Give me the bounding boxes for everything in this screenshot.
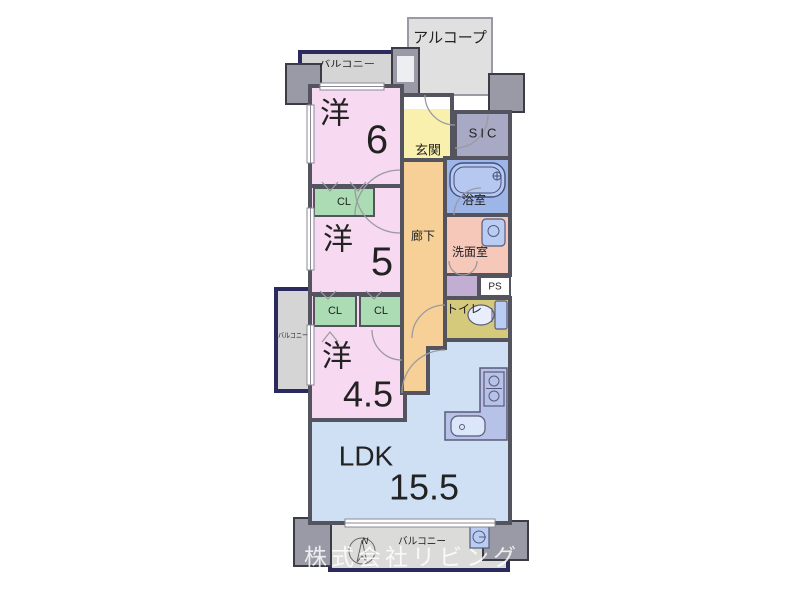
hallway-label: 廊下 [411, 228, 435, 243]
bedroom-45-label: 洋 [322, 341, 352, 374]
storage-box [445, 275, 478, 298]
washroom-label: 洗面室 [452, 244, 488, 259]
closet-label: CL [328, 305, 342, 317]
ldk-label: LDK [339, 441, 394, 472]
column-top-right [489, 74, 524, 112]
washroom-sink-icon [482, 219, 505, 246]
watermark-text: 株式会社リビング [304, 544, 520, 570]
kitchen-sink-icon [451, 416, 485, 436]
bedroom-5-label: 洋 [323, 224, 353, 257]
closet-label: CL [337, 196, 351, 208]
ldk-size: 15.5 [389, 467, 459, 508]
bedroom-6-size: 6 [366, 118, 388, 162]
balcony-left-label: バルコニー [278, 332, 308, 340]
floorplan-drawing: アルコープ バルコニー バルコニー バルコニー 洋 6 洋 5 洋 4.5 LD… [0, 0, 800, 600]
bath-label: 浴室 [462, 192, 486, 207]
floorplan-page: アルコープ バルコニー バルコニー バルコニー 洋 6 洋 5 洋 4.5 LD… [0, 0, 800, 600]
entry-label: 玄関 [415, 143, 441, 158]
column-top-middle-inner [397, 56, 414, 82]
balcony-top-label: バルコニー [319, 59, 375, 69]
bedroom-6-label: 洋 [320, 98, 350, 131]
alcove-label: アルコープ [413, 30, 487, 47]
toilet-label: トイレ [446, 302, 482, 316]
closet-label: CL [374, 305, 388, 317]
bedroom-45-size: 4.5 [343, 374, 393, 415]
balcony-left [276, 289, 310, 391]
ps-label: PS [488, 282, 502, 293]
bedroom-5-size: 5 [371, 240, 393, 284]
bathtub-icon [450, 163, 505, 197]
sic-label: SIC [469, 126, 500, 141]
